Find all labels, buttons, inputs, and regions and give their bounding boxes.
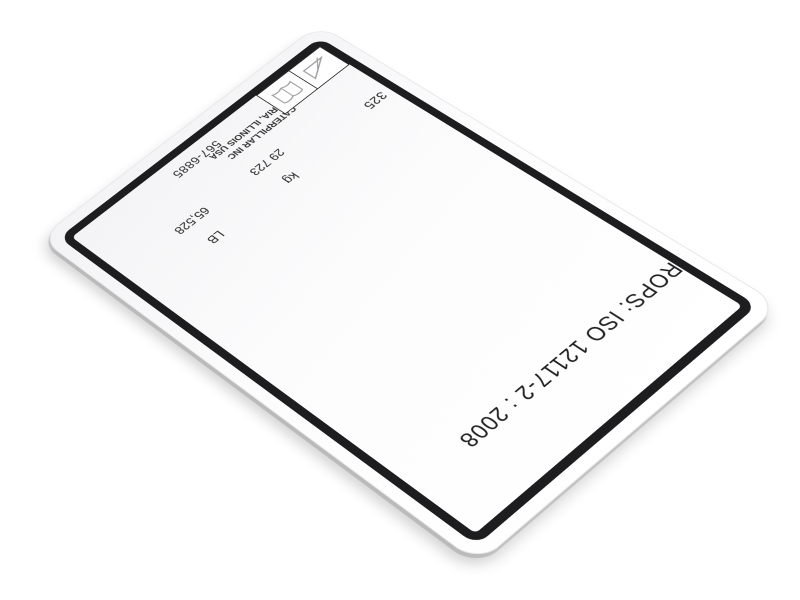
rops-label-plate: ROPS: ISO 12117-2 : 2008 325 kg 29 723 L… [39,24,781,564]
scene-background: ROPS: ISO 12117-2 : 2008 325 kg 29 723 L… [0,0,800,600]
